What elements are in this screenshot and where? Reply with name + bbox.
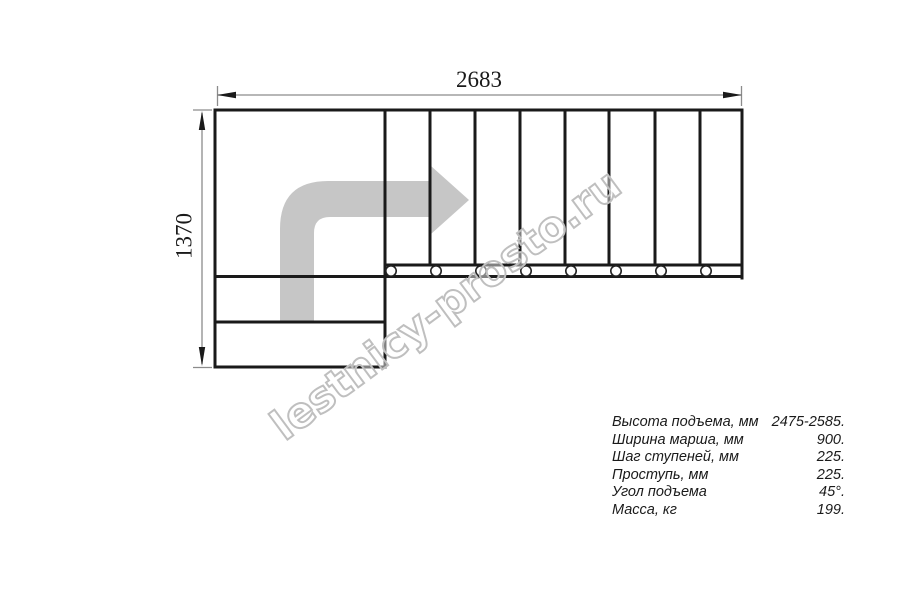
spec-value: 900. [817, 432, 845, 450]
direction-arrow-icon [280, 166, 469, 321]
spec-row: Проступь, мм 225. [612, 467, 845, 485]
baluster-circle [386, 266, 396, 276]
arrowhead-right-icon [723, 92, 742, 98]
baluster-circle [521, 266, 531, 276]
staircase-drawing: 2683 1370 [0, 0, 900, 600]
spec-value: 225. [817, 467, 845, 485]
spec-value: 2475-2585. [772, 414, 845, 432]
baluster-circle [431, 266, 441, 276]
step-lines [430, 110, 700, 265]
height-dimension-label: 1370 [172, 213, 197, 259]
spec-label: Шаг ступеней, мм [612, 449, 739, 467]
spec-row: Угол подъема 45°. [612, 484, 845, 502]
arrowhead-left-icon [217, 92, 236, 98]
spec-row: Высота подъема, мм 2475-2585. [612, 414, 845, 432]
spec-row: Ширина марша, мм 900. [612, 432, 845, 450]
spec-label: Масса, кг [612, 502, 677, 520]
baluster-circle [656, 266, 666, 276]
arrowhead-down-icon [199, 347, 205, 366]
spec-row: Шаг ступеней, мм 225. [612, 449, 845, 467]
specs-table: Высота подъема, мм 2475-2585. Ширина мар… [612, 414, 845, 520]
baluster-circle [701, 266, 711, 276]
baluster-circle [566, 266, 576, 276]
arrowhead-up-icon [199, 111, 205, 130]
spec-value: 45°. [819, 484, 845, 502]
baluster-circle [476, 266, 486, 276]
spec-row: Масса, кг 199. [612, 502, 845, 520]
spec-label: Угол подъема [612, 484, 707, 502]
baluster-circles [386, 266, 711, 276]
spec-label: Высота подъема, мм [612, 414, 759, 432]
spec-label: Ширина марша, мм [612, 432, 744, 450]
spec-value: 225. [817, 449, 845, 467]
baluster-circle [611, 266, 621, 276]
spec-label: Проступь, мм [612, 467, 708, 485]
width-dimension-label: 2683 [456, 67, 502, 92]
spec-value: 199. [817, 502, 845, 520]
